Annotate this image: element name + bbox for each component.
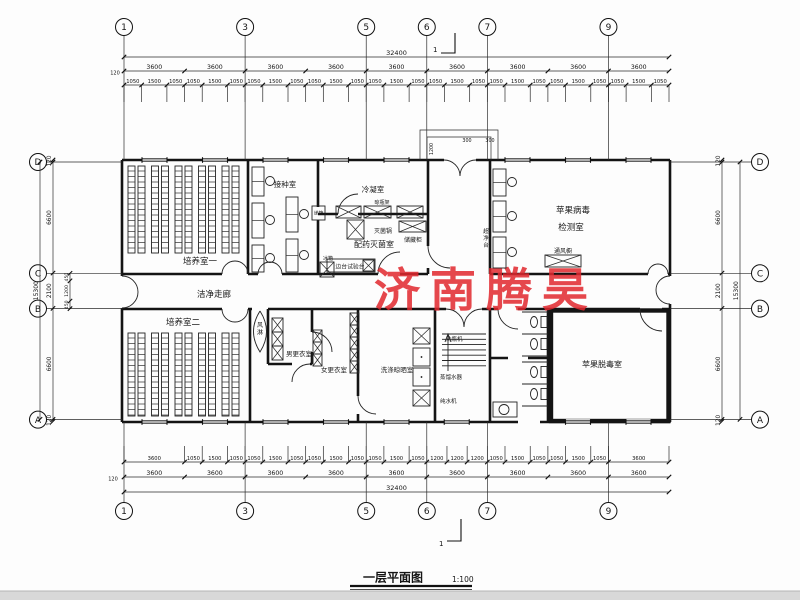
- grid-bubble-label: 5: [363, 507, 369, 517]
- dim-label: 1500: [572, 456, 585, 462]
- dim-label: 1050: [368, 79, 381, 85]
- grid-bubble-label: 1: [121, 23, 127, 33]
- dim-label: 3600: [449, 470, 465, 477]
- dim-label: 1050: [351, 456, 364, 462]
- dim-label: 2100: [47, 283, 53, 298]
- room-label-test-2: 检测室: [558, 222, 584, 233]
- dim-label: 6600: [716, 210, 722, 225]
- grid-bubble-label: 3: [242, 23, 248, 33]
- dim-label: 32400: [386, 49, 407, 57]
- dim-label: 1050: [290, 456, 303, 462]
- dim-label: 1050: [532, 456, 545, 462]
- dim-label: 3600: [631, 470, 647, 477]
- label-cabinet: 储藏柜: [404, 236, 422, 244]
- grid-bubble-label: 5: [363, 23, 369, 33]
- room-label-test-1: 苹果病毒: [556, 205, 591, 216]
- room-label-condensing: 冷凝室: [362, 184, 385, 194]
- label-air-shower: 淋: [257, 329, 263, 337]
- section-label-top: 1: [433, 46, 437, 54]
- label-side-bench: 边台试验台: [336, 263, 365, 271]
- dim-label: 3600: [268, 470, 284, 477]
- dim-label: 3600: [631, 64, 647, 71]
- dim-label: 1500: [632, 79, 645, 85]
- dim-label: 15300: [33, 281, 40, 300]
- dim-label: 1500: [390, 79, 403, 85]
- dim-label: 1050: [351, 79, 364, 85]
- dim-label: 1050: [247, 79, 260, 85]
- dim-label: 1050: [532, 79, 545, 85]
- dim-label: 120: [110, 71, 120, 77]
- dim-label: 3600: [632, 456, 645, 462]
- label-water-purifier: 纯水机: [440, 397, 457, 405]
- dim-label: 3600: [207, 64, 223, 71]
- room-label-culture1: 培养室一: [183, 256, 218, 267]
- label-bottle-rack: 晾瓶架: [374, 199, 389, 206]
- dim-label: 1050: [429, 79, 442, 85]
- dim-label: 3600: [570, 470, 586, 477]
- dim-label: 1200: [450, 456, 463, 462]
- dim-label: 1050: [126, 79, 139, 85]
- room-label-women: 女更衣室: [321, 365, 348, 374]
- dim-label: 1500: [208, 456, 221, 462]
- drawing-title: 一层平面图: [363, 571, 423, 585]
- dim-label: 1050: [187, 79, 200, 85]
- porch-dim: 300: [462, 138, 471, 144]
- dim-label: 1050: [472, 79, 485, 85]
- dim-label: 1500: [329, 456, 342, 462]
- dim-label: 1500: [269, 79, 282, 85]
- dim-label: 3600: [146, 470, 162, 477]
- dim-label: 1200: [64, 285, 70, 297]
- dim-label: 1050: [490, 79, 503, 85]
- dim-label: 1500: [208, 79, 221, 85]
- label-clean-bench: 净: [483, 234, 489, 242]
- dim-label: 3600: [146, 64, 162, 71]
- dim-label: 32400: [386, 484, 407, 492]
- dim-label: 120: [108, 477, 118, 483]
- dim-label: 3600: [207, 470, 223, 477]
- page-edge-strip: [0, 592, 800, 600]
- dim-label: 1050: [550, 456, 563, 462]
- section-label-bottom: 1: [439, 540, 443, 548]
- dim-label: 3600: [328, 64, 344, 71]
- dim-label: 1500: [390, 456, 403, 462]
- room-label-inoculation: 接种室: [274, 179, 297, 189]
- label-air-shower: 风: [257, 322, 263, 329]
- grid-bubble-label: 3: [242, 507, 248, 517]
- dim-label: 1050: [654, 79, 667, 85]
- dim-label: 1050: [247, 456, 260, 462]
- grid-bubble-label: 9: [606, 23, 612, 33]
- dim-label: 1050: [187, 456, 200, 462]
- dim-label: 6600: [716, 356, 722, 371]
- grid-bubble-label: C: [757, 270, 763, 280]
- dim-label: 1200: [430, 456, 443, 462]
- dim-label: 1500: [450, 79, 463, 85]
- room-label-prep: 配药灭菌室: [354, 239, 394, 249]
- dim-label: 1050: [308, 79, 321, 85]
- grid-bubble-label: 7: [484, 23, 490, 33]
- distiller-dot: [421, 356, 423, 358]
- dim-label: 3600: [328, 470, 344, 477]
- dim-label: 1050: [169, 79, 182, 85]
- dim-label: 1050: [230, 79, 243, 85]
- grid-bubble-label: D: [757, 158, 764, 168]
- dim-label: 6600: [47, 356, 53, 371]
- grid-bubble-label: 7: [484, 507, 490, 517]
- dim-label: 1050: [593, 79, 606, 85]
- dim-label: 1050: [490, 456, 503, 462]
- distiller-dot: [421, 376, 423, 378]
- label-sterilizer: 灭菌锅: [374, 227, 392, 235]
- dim-label: 3600: [148, 456, 161, 462]
- room-label-detox: 苹果脱毒室: [582, 359, 622, 369]
- page-bottom-strip: [0, 591, 800, 600]
- label-fridge: 冰箱: [323, 255, 333, 262]
- dim-label: 3600: [449, 64, 465, 71]
- grid-bubble-label: 1: [121, 507, 127, 517]
- label-distiller: 蒸馏水器: [440, 373, 463, 381]
- dim-label: 1050: [308, 456, 321, 462]
- grid-bubble-label: B: [757, 305, 763, 315]
- grid-bubble-label: 6: [424, 507, 430, 517]
- dim-label: 1500: [148, 79, 161, 85]
- dim-label: 1200: [471, 456, 484, 462]
- dim-label: 1050: [550, 79, 563, 85]
- room-label-culture2: 培养室二: [166, 317, 201, 328]
- dim-label: 1050: [411, 79, 424, 85]
- dim-label: 3600: [570, 64, 586, 71]
- grid-bubble-label: A: [757, 416, 764, 426]
- label-pass-box: 递箱: [314, 210, 324, 217]
- label-clean-bench: 超: [483, 227, 489, 235]
- dim-label: 1500: [511, 456, 524, 462]
- watermark-text: 济南腾昊: [374, 263, 598, 317]
- dim-label: 6600: [47, 210, 53, 225]
- dim-label: 3600: [389, 470, 405, 477]
- dim-label: 1500: [329, 79, 342, 85]
- grid-bubble-label: 9: [606, 507, 612, 517]
- dim-label: 1050: [411, 456, 424, 462]
- dim-label: 1050: [368, 456, 381, 462]
- dim-label: 1050: [290, 79, 303, 85]
- dim-label: 1500: [511, 79, 524, 85]
- dim-label: 2100: [716, 283, 722, 298]
- porch-dim: 300: [485, 138, 494, 144]
- dim-label: 1050: [611, 79, 624, 85]
- floorplan-canvas: 1 1 培养室一 接种室 冷凝室 配药灭菌室 苹果病毒 检测室 洁净走廊 培养室…: [0, 0, 800, 600]
- label-fume-hood: 通风橱: [554, 247, 572, 255]
- porch-dim: 1200: [429, 143, 435, 155]
- dim-label: 3600: [268, 64, 284, 71]
- dim-label: 3600: [389, 64, 405, 71]
- grid-bubble-label: 6: [424, 23, 430, 33]
- room-label-men: 男更衣室: [286, 349, 313, 358]
- dim-label: 1500: [269, 456, 282, 462]
- dim-label: 15300: [733, 281, 740, 300]
- room-label-corridor: 洁净走廊: [197, 289, 232, 300]
- dim-label: 1050: [230, 456, 243, 462]
- room-label-washing: 洗涤晾晒室: [381, 365, 414, 374]
- dim-label: 1500: [572, 79, 585, 85]
- dim-label: 1050: [593, 456, 606, 462]
- drawing-scale: 1:100: [452, 575, 474, 584]
- dim-label: 3600: [510, 470, 526, 477]
- label-clean-bench: 台: [483, 241, 489, 249]
- dim-label: 3600: [510, 64, 526, 71]
